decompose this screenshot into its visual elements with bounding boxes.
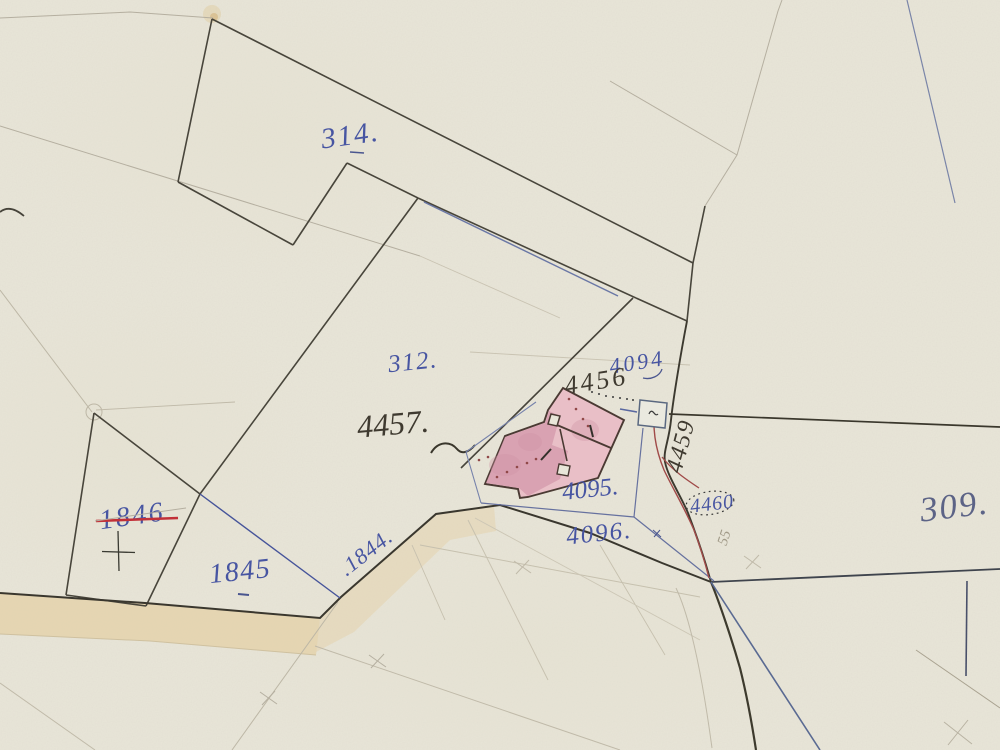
svg-text:34M.: 34M.	[925, 745, 970, 750]
svg-text:4099: 4099	[758, 746, 806, 750]
svg-text:1845: 1845	[208, 553, 273, 590]
svg-text:312.: 312.	[386, 346, 439, 378]
svg-text:4457.: 4457.	[356, 403, 431, 445]
